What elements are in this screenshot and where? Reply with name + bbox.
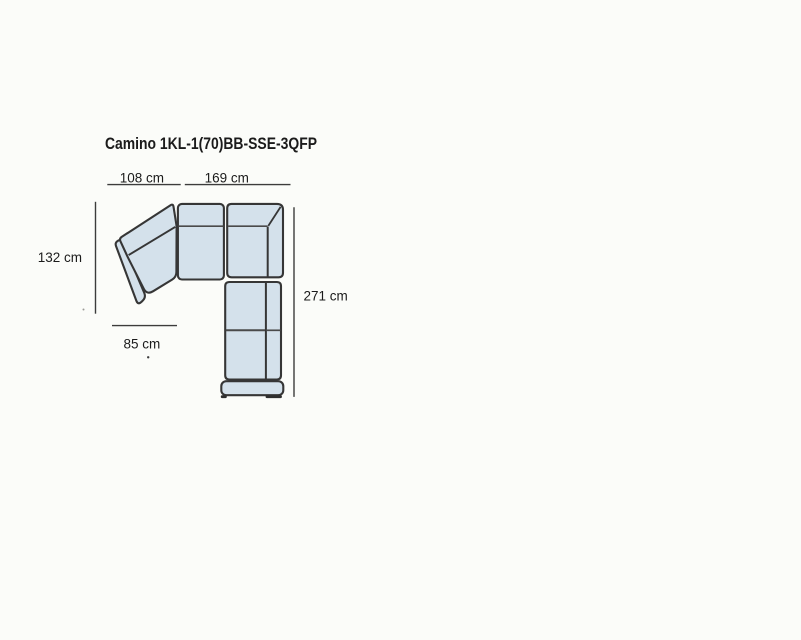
- svg-text:108 cm: 108 cm: [120, 171, 164, 186]
- svg-text:Camino 1KL-1(70)BB-SSE-3QFP: Camino 1KL-1(70)BB-SSE-3QFP: [105, 135, 317, 153]
- svg-text:271 cm: 271 cm: [304, 288, 348, 303]
- svg-text:132 cm: 132 cm: [38, 250, 82, 265]
- svg-text:85 cm: 85 cm: [124, 337, 161, 352]
- svg-text:169 cm: 169 cm: [205, 171, 249, 186]
